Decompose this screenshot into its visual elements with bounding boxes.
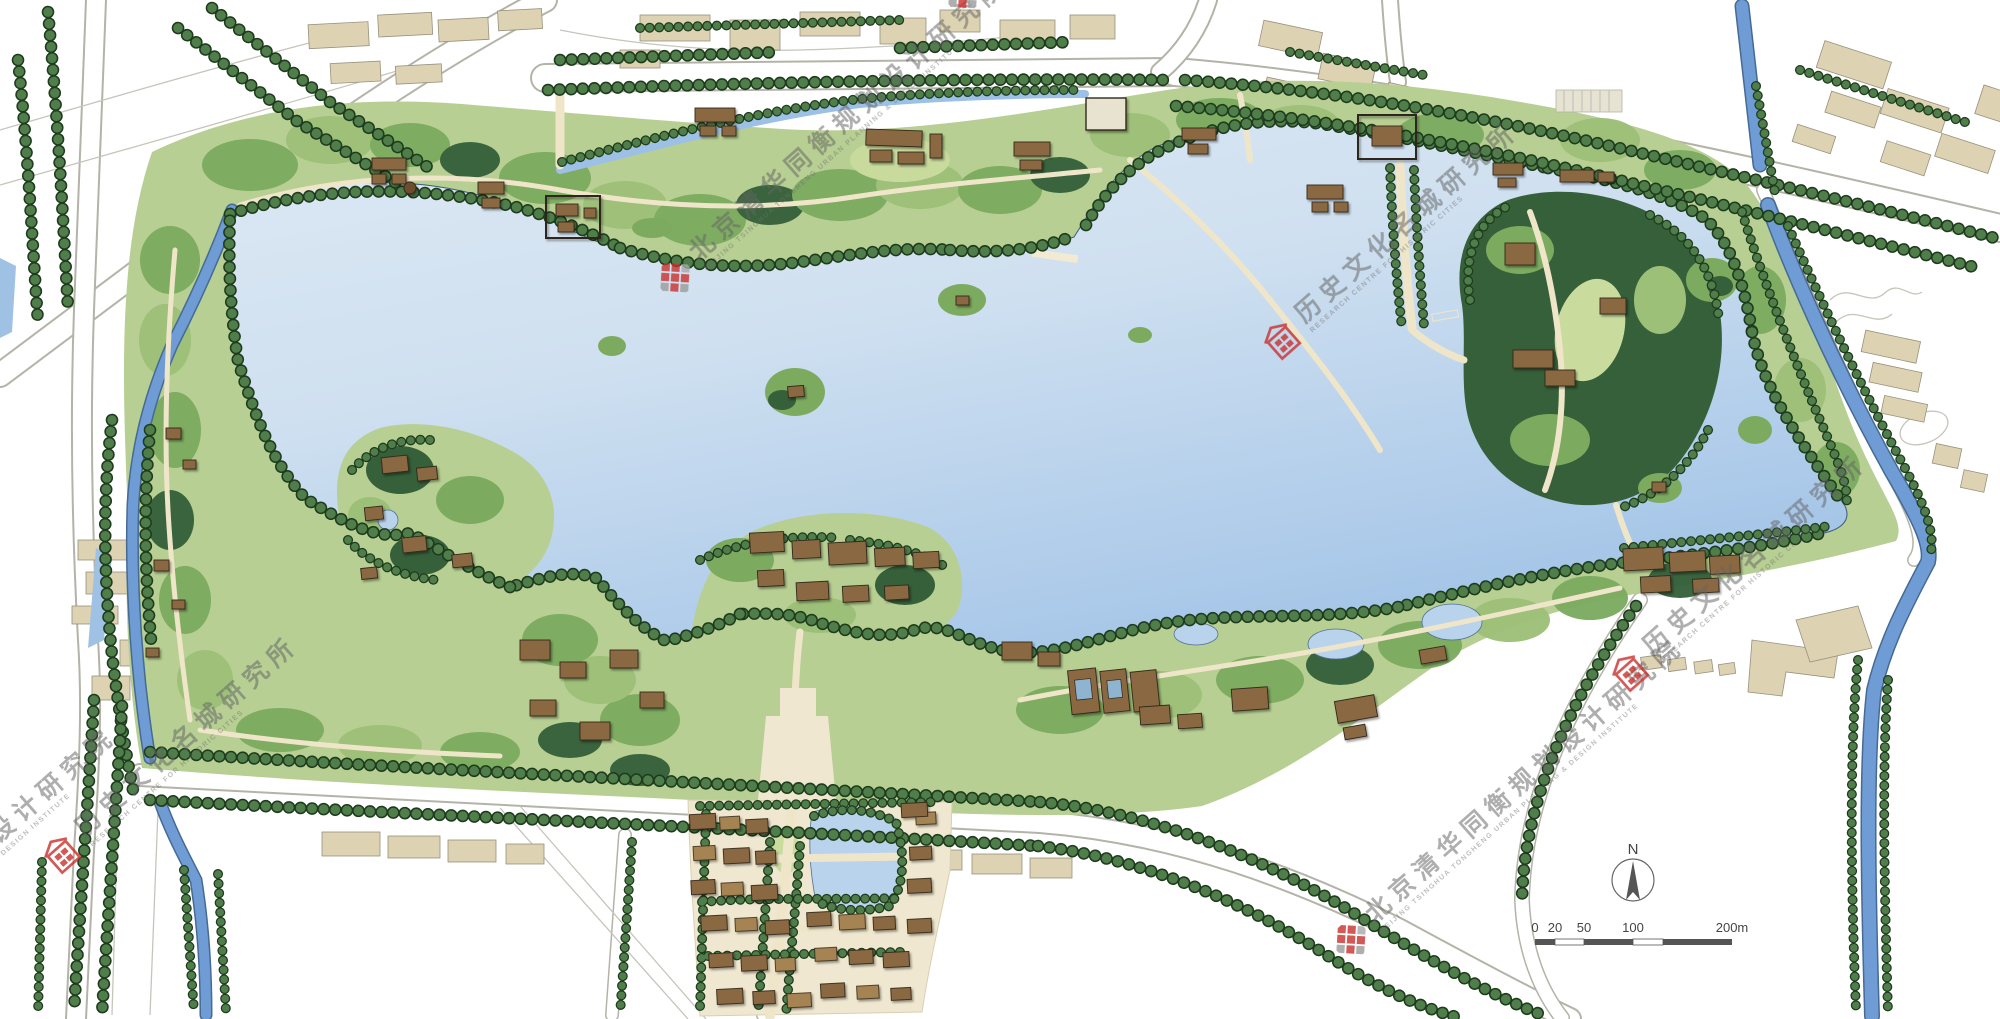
svg-text:100: 100: [1622, 920, 1644, 935]
north-label: N: [1628, 841, 1639, 858]
svg-text:200m: 200m: [1716, 920, 1749, 935]
masterplan-canvas: N 0 20 50 100 200m: [0, 0, 2000, 1019]
svg-text:20: 20: [1548, 920, 1562, 935]
svg-text:0: 0: [1531, 920, 1538, 935]
map-furniture: N 0 20 50 100 200m: [1531, 841, 1748, 945]
north-arrow-icon: N: [1612, 841, 1654, 901]
site-plan-drawing: N 0 20 50 100 200m: [0, 0, 2000, 1019]
svg-text:50: 50: [1577, 920, 1591, 935]
scale-bar: 0 20 50 100 200m: [1531, 920, 1748, 945]
